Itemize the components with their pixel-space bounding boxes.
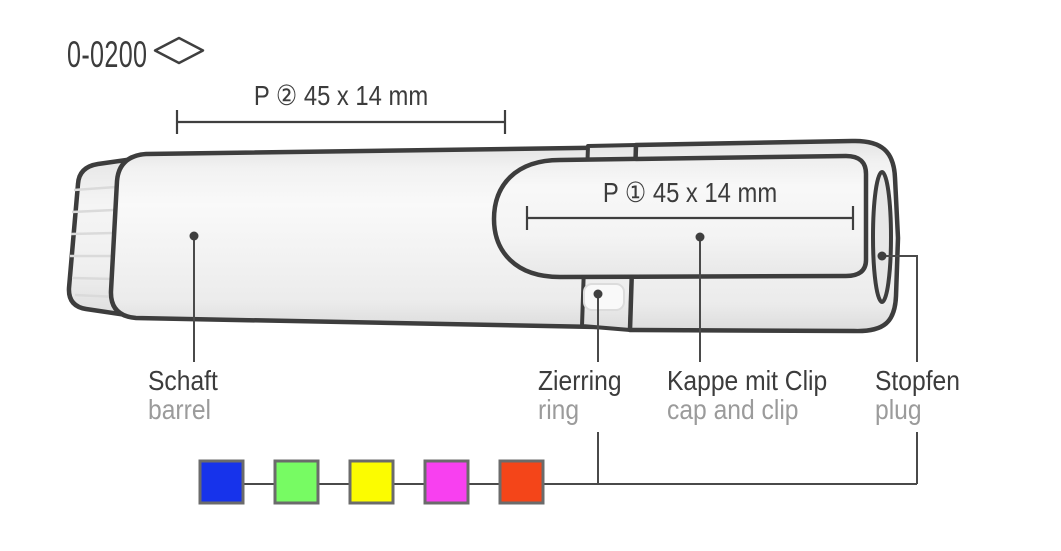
color-swatch-blue [200,461,243,503]
marker-diagram-canvas [0,0,1061,551]
ring-leader-dot [594,290,603,299]
barrel-leader-dot [190,232,199,241]
part-label-cap-de: Kappe mit Clip [667,366,827,395]
color-swatches [200,461,543,503]
marker-diagram-page: 0-0200 P ② 45 x 14 mm P ① 45 x 14 mm Sch… [0,0,1061,551]
part-label-ring-en: ring [538,395,622,424]
part-label-barrel: Schaft barrel [148,366,218,424]
part-label-cap-en: cap and clip [667,395,827,424]
ring-highlight [584,284,624,310]
cap-leader-dot [696,233,705,242]
color-swatch-magenta [425,461,468,503]
part-label-ring: Zierring ring [538,366,622,424]
part-label-barrel-en: barrel [148,395,218,424]
clip-shape [494,156,866,277]
part-label-barrel-de: Schaft [148,366,218,395]
diamond-shape-icon [155,38,203,63]
part-label-ring-de: Zierring [538,366,622,395]
print-area-1-label: P ① 45 x 14 mm [551,179,830,207]
part-label-plug-en: plug [875,395,960,424]
plug-shape [873,172,891,302]
color-swatch-green [275,461,318,503]
print-area-2-label: P ② 45 x 14 mm [201,82,482,110]
color-swatch-red [500,461,543,503]
print-area-2-dimension-line [177,110,505,134]
part-label-plug-de: Stopfen [875,366,960,395]
part-label-plug: Stopfen plug [875,366,960,424]
color-swatch-yellow [350,461,393,503]
plug-leader-dot [878,252,887,261]
part-label-cap: Kappe mit Clip cap and clip [667,366,827,424]
product-code: 0-0200 [67,36,147,73]
